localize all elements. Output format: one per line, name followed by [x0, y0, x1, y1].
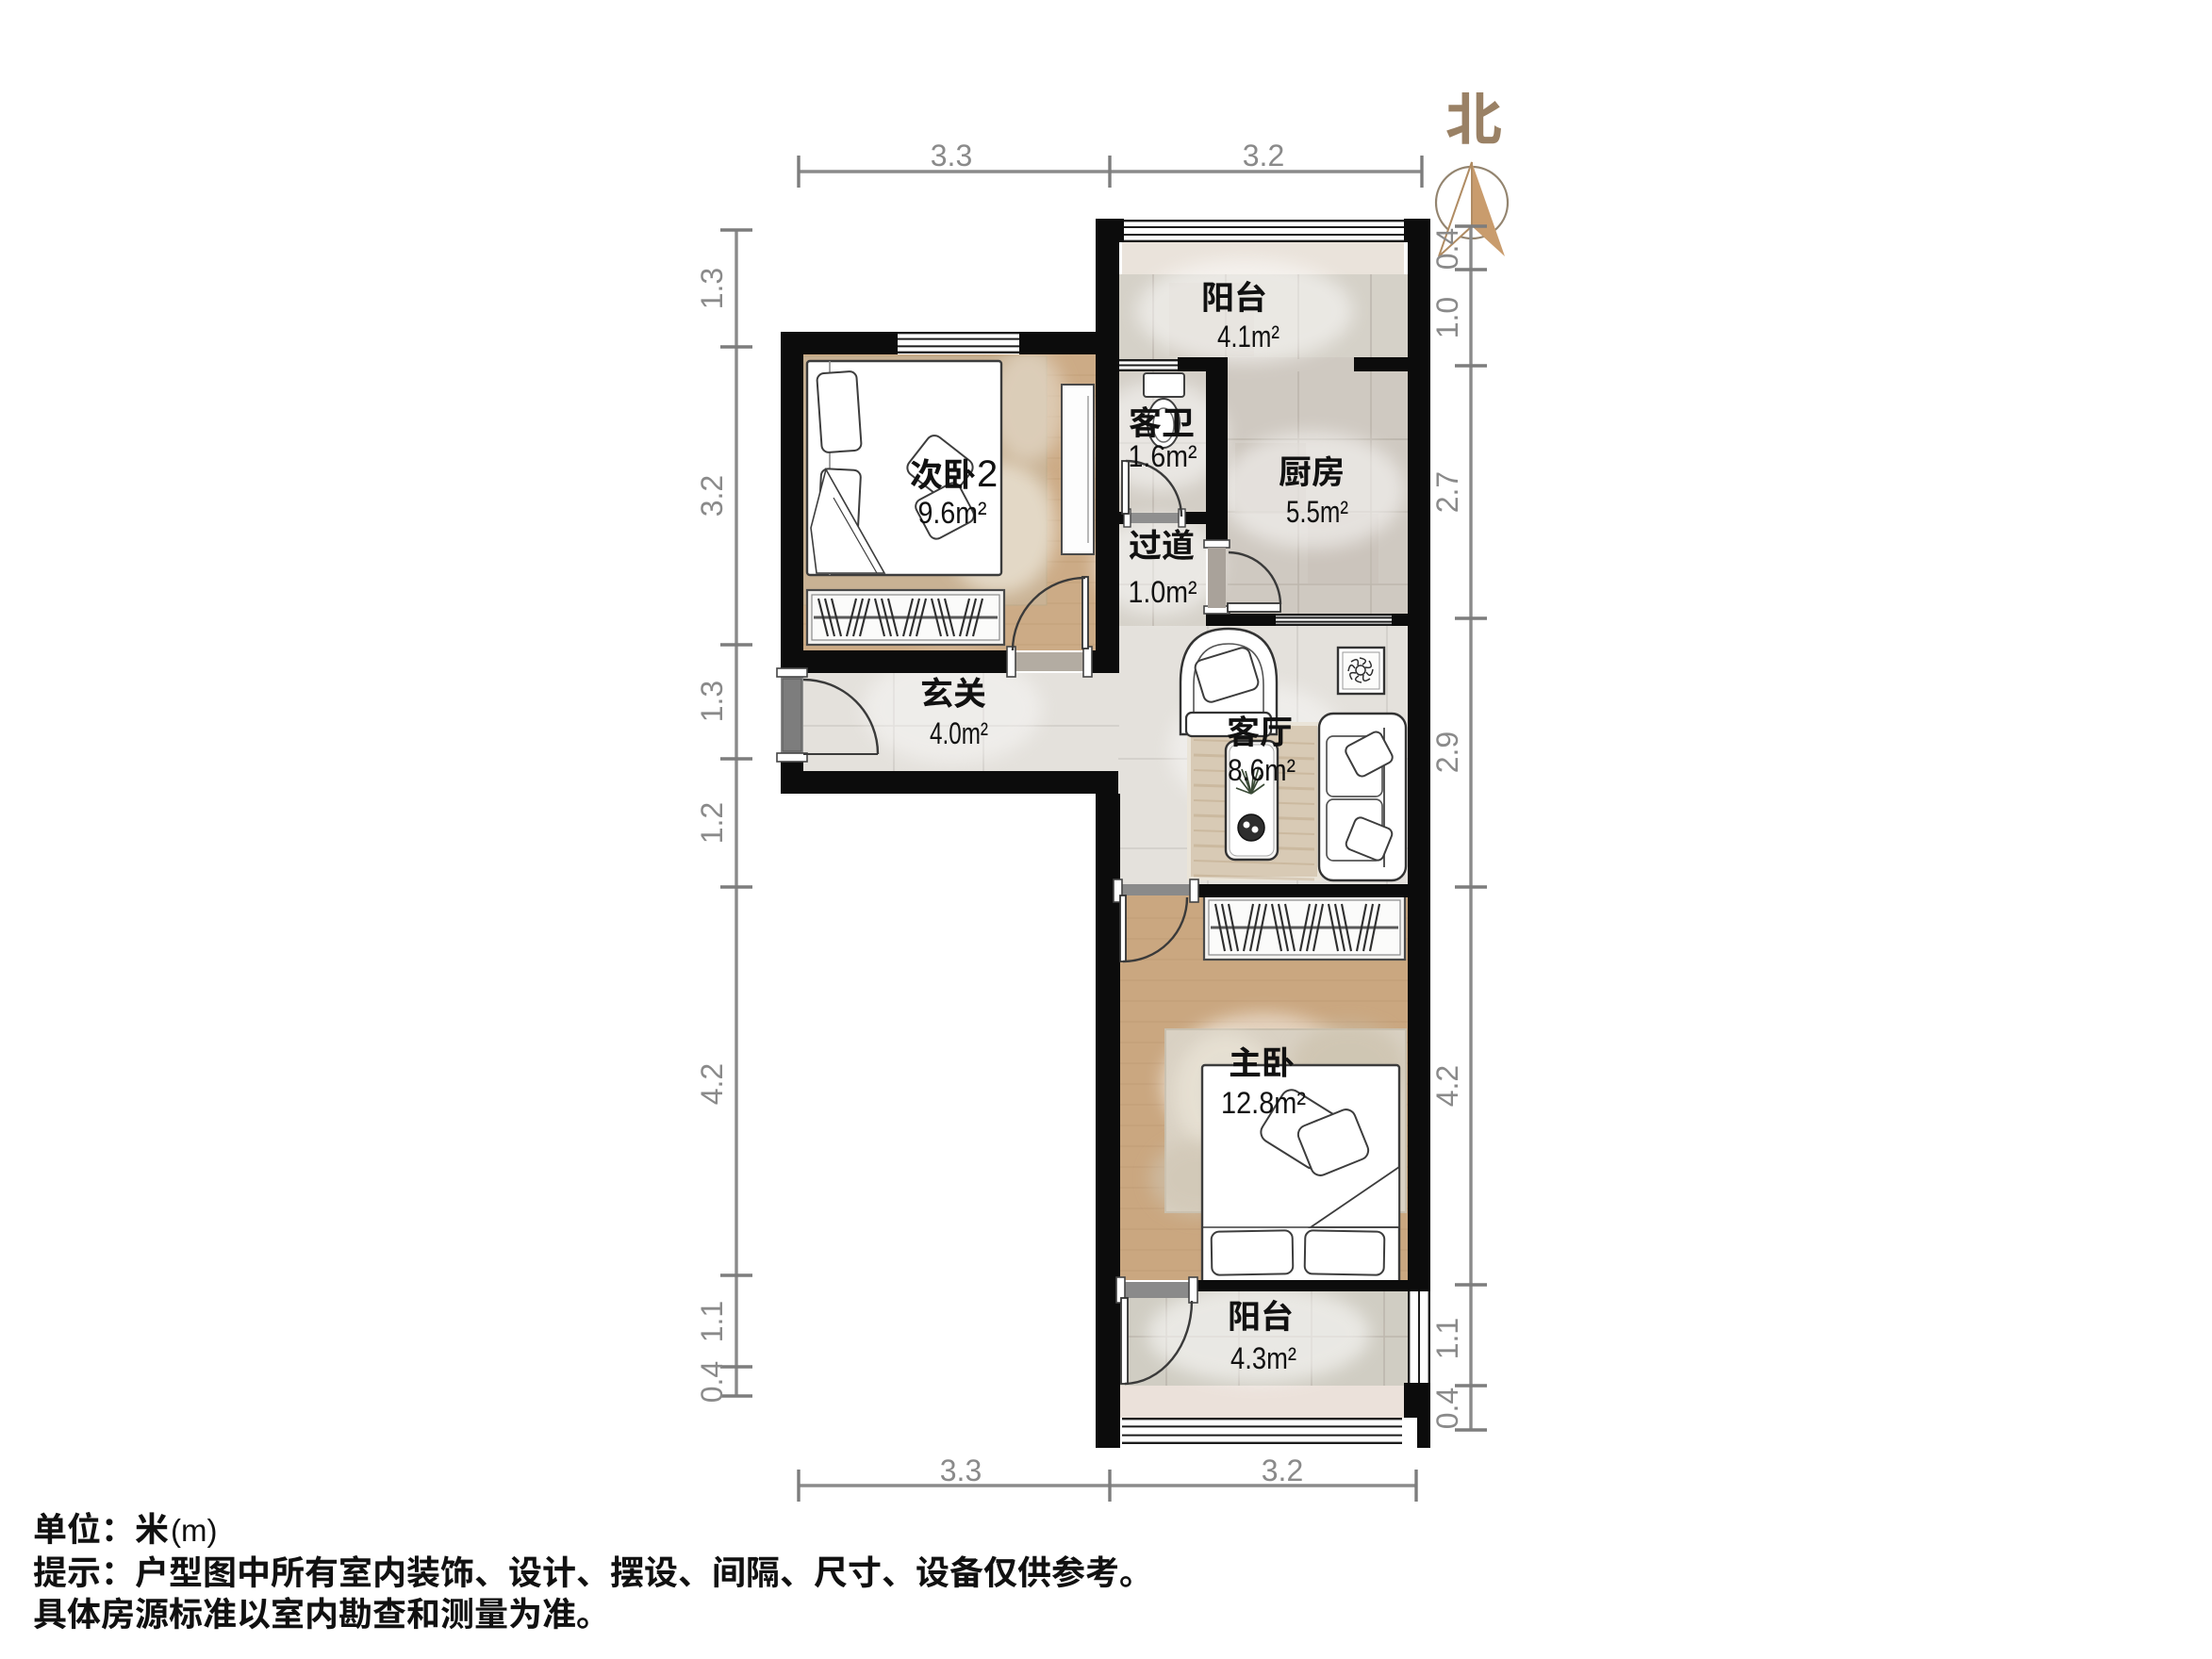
svg-text:1.1: 1.1: [695, 1301, 729, 1342]
svg-text:0.4: 0.4: [695, 1361, 729, 1403]
svg-text:0.4: 0.4: [1430, 1388, 1464, 1429]
svg-text:2: 2: [977, 453, 998, 495]
svg-text:0.4: 0.4: [1430, 228, 1464, 270]
svg-text:2.9: 2.9: [1430, 731, 1464, 773]
svg-text:(m): (m): [171, 1513, 217, 1548]
svg-text:1.3: 1.3: [695, 268, 729, 309]
svg-text:4.3m²: 4.3m²: [1230, 1341, 1296, 1375]
svg-text:1.0m²: 1.0m²: [1129, 575, 1197, 609]
svg-text:1.0: 1.0: [1430, 297, 1464, 338]
svg-text:3.3: 3.3: [940, 1454, 982, 1487]
svg-text:3.2: 3.2: [695, 475, 729, 517]
svg-text:4.2: 4.2: [1430, 1065, 1464, 1107]
svg-text:4.1m²: 4.1m²: [1217, 320, 1279, 353]
svg-text:8.6m²: 8.6m²: [1228, 753, 1296, 787]
svg-text:3.2: 3.2: [1243, 139, 1284, 172]
svg-text:4.2: 4.2: [695, 1063, 729, 1105]
svg-text:1.1: 1.1: [1430, 1318, 1464, 1359]
svg-text:1.2: 1.2: [695, 802, 729, 844]
svg-text:5.5m²: 5.5m²: [1286, 495, 1348, 529]
svg-text:4.0m²: 4.0m²: [930, 716, 988, 750]
svg-text:3.3: 3.3: [931, 139, 972, 172]
svg-text:9.6m²: 9.6m²: [918, 496, 987, 530]
svg-text:12.8m²: 12.8m²: [1221, 1086, 1306, 1120]
svg-text:3.2: 3.2: [1262, 1454, 1303, 1487]
svg-text:2.7: 2.7: [1430, 471, 1464, 513]
svg-text:1.6m²: 1.6m²: [1129, 439, 1197, 473]
svg-text:1.3: 1.3: [695, 681, 729, 722]
